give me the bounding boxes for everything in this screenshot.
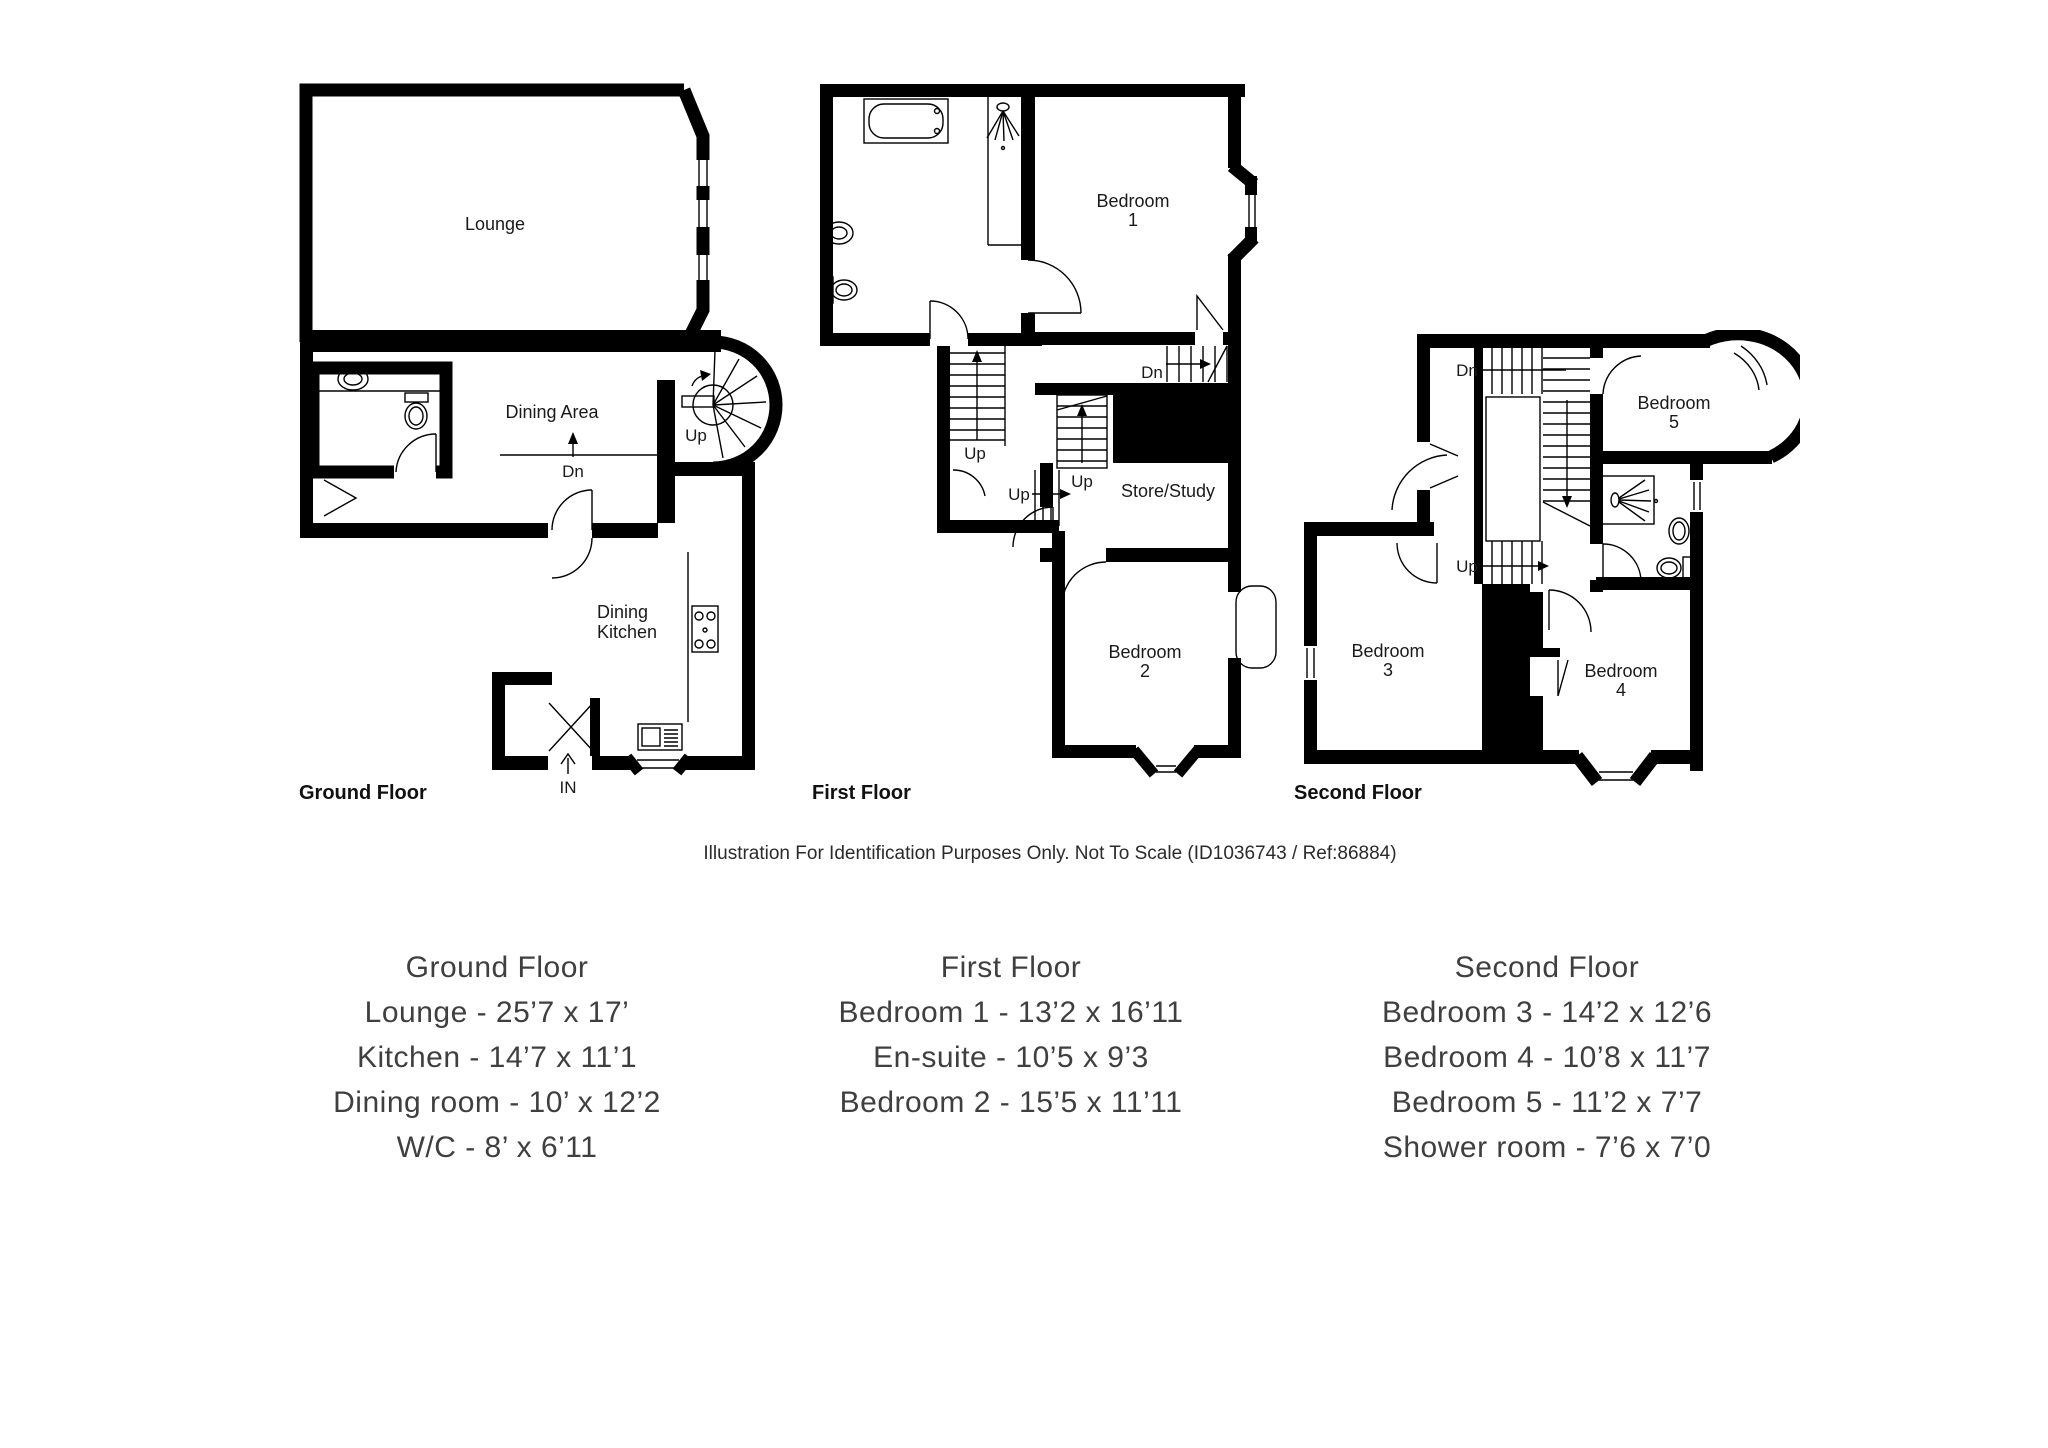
summary-first-floor: First Floor Bedroom 1 - 13’2 x 16’11 En-…	[751, 945, 1271, 1125]
first-floor-plan: Bedroom 1 Dn Up Up Up Store/Study Bedroo…	[816, 80, 1286, 800]
room-label-dining-kitchen-1: Dining	[597, 602, 648, 622]
stair-label-up: Up	[685, 426, 707, 445]
landing-door-arc	[953, 470, 985, 496]
stair-label-dn: Dn	[1456, 361, 1478, 380]
bedroom1-door	[1197, 296, 1223, 330]
bedroom5-door-arc	[1603, 356, 1641, 394]
summary-line: Shower room - 7’6 x 7’0	[1287, 1125, 1807, 1170]
room-label-bedroom3-1: Bedroom	[1351, 641, 1424, 661]
down-stairs	[1166, 346, 1227, 382]
summary-line: Bedroom 5 - 11’2 x 7’7	[1287, 1080, 1807, 1125]
entrance-arrow-icon	[561, 754, 575, 774]
room-label-lounge: Lounge	[465, 214, 525, 234]
down-arrow	[568, 432, 578, 457]
summary-line: W/C - 8’ x 6’11	[237, 1125, 757, 1170]
stair-label-up: Up	[1456, 557, 1478, 576]
exterior-door	[324, 480, 356, 516]
stair-label-up-main: Up	[964, 444, 986, 463]
summary-heading: Ground Floor	[237, 945, 757, 990]
room-label-bedroom3-2: 3	[1383, 660, 1393, 680]
room-label-bedroom5-2: 5	[1669, 412, 1679, 432]
kitchen-sink-icon	[638, 724, 682, 750]
room-label-bedroom1-1: Bedroom	[1096, 191, 1169, 211]
room-label-dining-area: Dining Area	[505, 402, 599, 422]
summary-ground-floor: Ground Floor Lounge - 25’7 x 17’ Kitchen…	[237, 945, 757, 1170]
room-label-bedroom4-1: Bedroom	[1584, 661, 1657, 681]
shower-icon	[987, 97, 1021, 245]
first-floor-caption: First Floor	[812, 782, 911, 805]
summary-second-floor: Second Floor Bedroom 3 - 14’2 x 12’6 Bed…	[1287, 945, 1807, 1170]
small-up-stairs	[1032, 470, 1071, 526]
room-label-dining-kitchen-2: Kitchen	[597, 622, 657, 642]
stair-label-dn: Dn	[562, 462, 584, 481]
ground-floor-plan: Lounge Dining Area Dn Up Dining Kitchen …	[296, 80, 816, 800]
summary-heading: Second Floor	[1287, 945, 1807, 990]
disclaimer-text: Illustration For Identification Purposes…	[550, 843, 1550, 865]
room-label-bedroom5-1: Bedroom	[1637, 393, 1710, 413]
second-floor-caption: Second Floor	[1294, 782, 1422, 805]
stair-label-dn: Dn	[1141, 363, 1163, 382]
summary-line: Bedroom 1 - 13’2 x 16’11	[751, 990, 1271, 1035]
room-label-bedroom2-2: 2	[1140, 661, 1150, 681]
summary-line: Bedroom 2 - 15’5 x 11’11	[751, 1080, 1271, 1125]
wc-toilet-icon	[405, 393, 428, 429]
mid-up-stairs	[1057, 395, 1107, 468]
summary-heading: First Floor	[751, 945, 1271, 990]
ground-floor-caption: Ground Floor	[299, 782, 427, 805]
first-walls	[820, 84, 1257, 774]
summary-line: Bedroom 3 - 14’2 x 12’6	[1287, 990, 1807, 1035]
summary-line: Lounge - 25’7 x 17’	[237, 990, 757, 1035]
summary-line: En-suite - 10’5 x 9’3	[751, 1035, 1271, 1080]
summary-line: Bedroom 4 - 10’8 x 11’7	[1287, 1035, 1807, 1080]
second-floor-plan: Dn Up Bedroom 5 Bedroom 3 Bedroom 4	[1300, 330, 1800, 800]
bedroom3-door-arc	[1397, 543, 1437, 583]
stairwell	[1481, 348, 1590, 584]
shower-sink-icon	[1669, 518, 1689, 544]
entrance-label-in: IN	[560, 778, 577, 797]
stair-label-up-small: Up	[1008, 485, 1030, 504]
ensuite-door-arcs	[930, 260, 1081, 339]
shower-enclosure-icon	[1600, 476, 1658, 524]
bath-icon	[864, 99, 948, 143]
summary-line: Dining room - 10’ x 12’2	[237, 1080, 757, 1125]
shower-room-door-arc	[1603, 544, 1641, 582]
room-label-bedroom2-1: Bedroom	[1108, 642, 1181, 662]
room-label-bedroom4-2: 4	[1616, 680, 1626, 700]
shower-toilet-icon	[1657, 557, 1695, 579]
floorplan-page: Lounge Dining Area Dn Up Dining Kitchen …	[0, 0, 2048, 1448]
room-label-store-study: Store/Study	[1121, 481, 1215, 501]
stair-label-up-mid: Up	[1071, 472, 1093, 491]
room-label-bedroom1-2: 1	[1128, 210, 1138, 230]
entrance-double-doors	[549, 703, 593, 751]
kitchen-door-arcs	[552, 490, 592, 578]
bedroom2-door-arc	[1062, 562, 1106, 606]
main-up-stairs	[950, 346, 1005, 446]
summary-line: Kitchen - 14’7 x 11’1	[237, 1035, 757, 1080]
second-walls	[1304, 334, 1800, 782]
hob-icon	[692, 606, 718, 652]
side-bay-window	[1236, 586, 1276, 668]
